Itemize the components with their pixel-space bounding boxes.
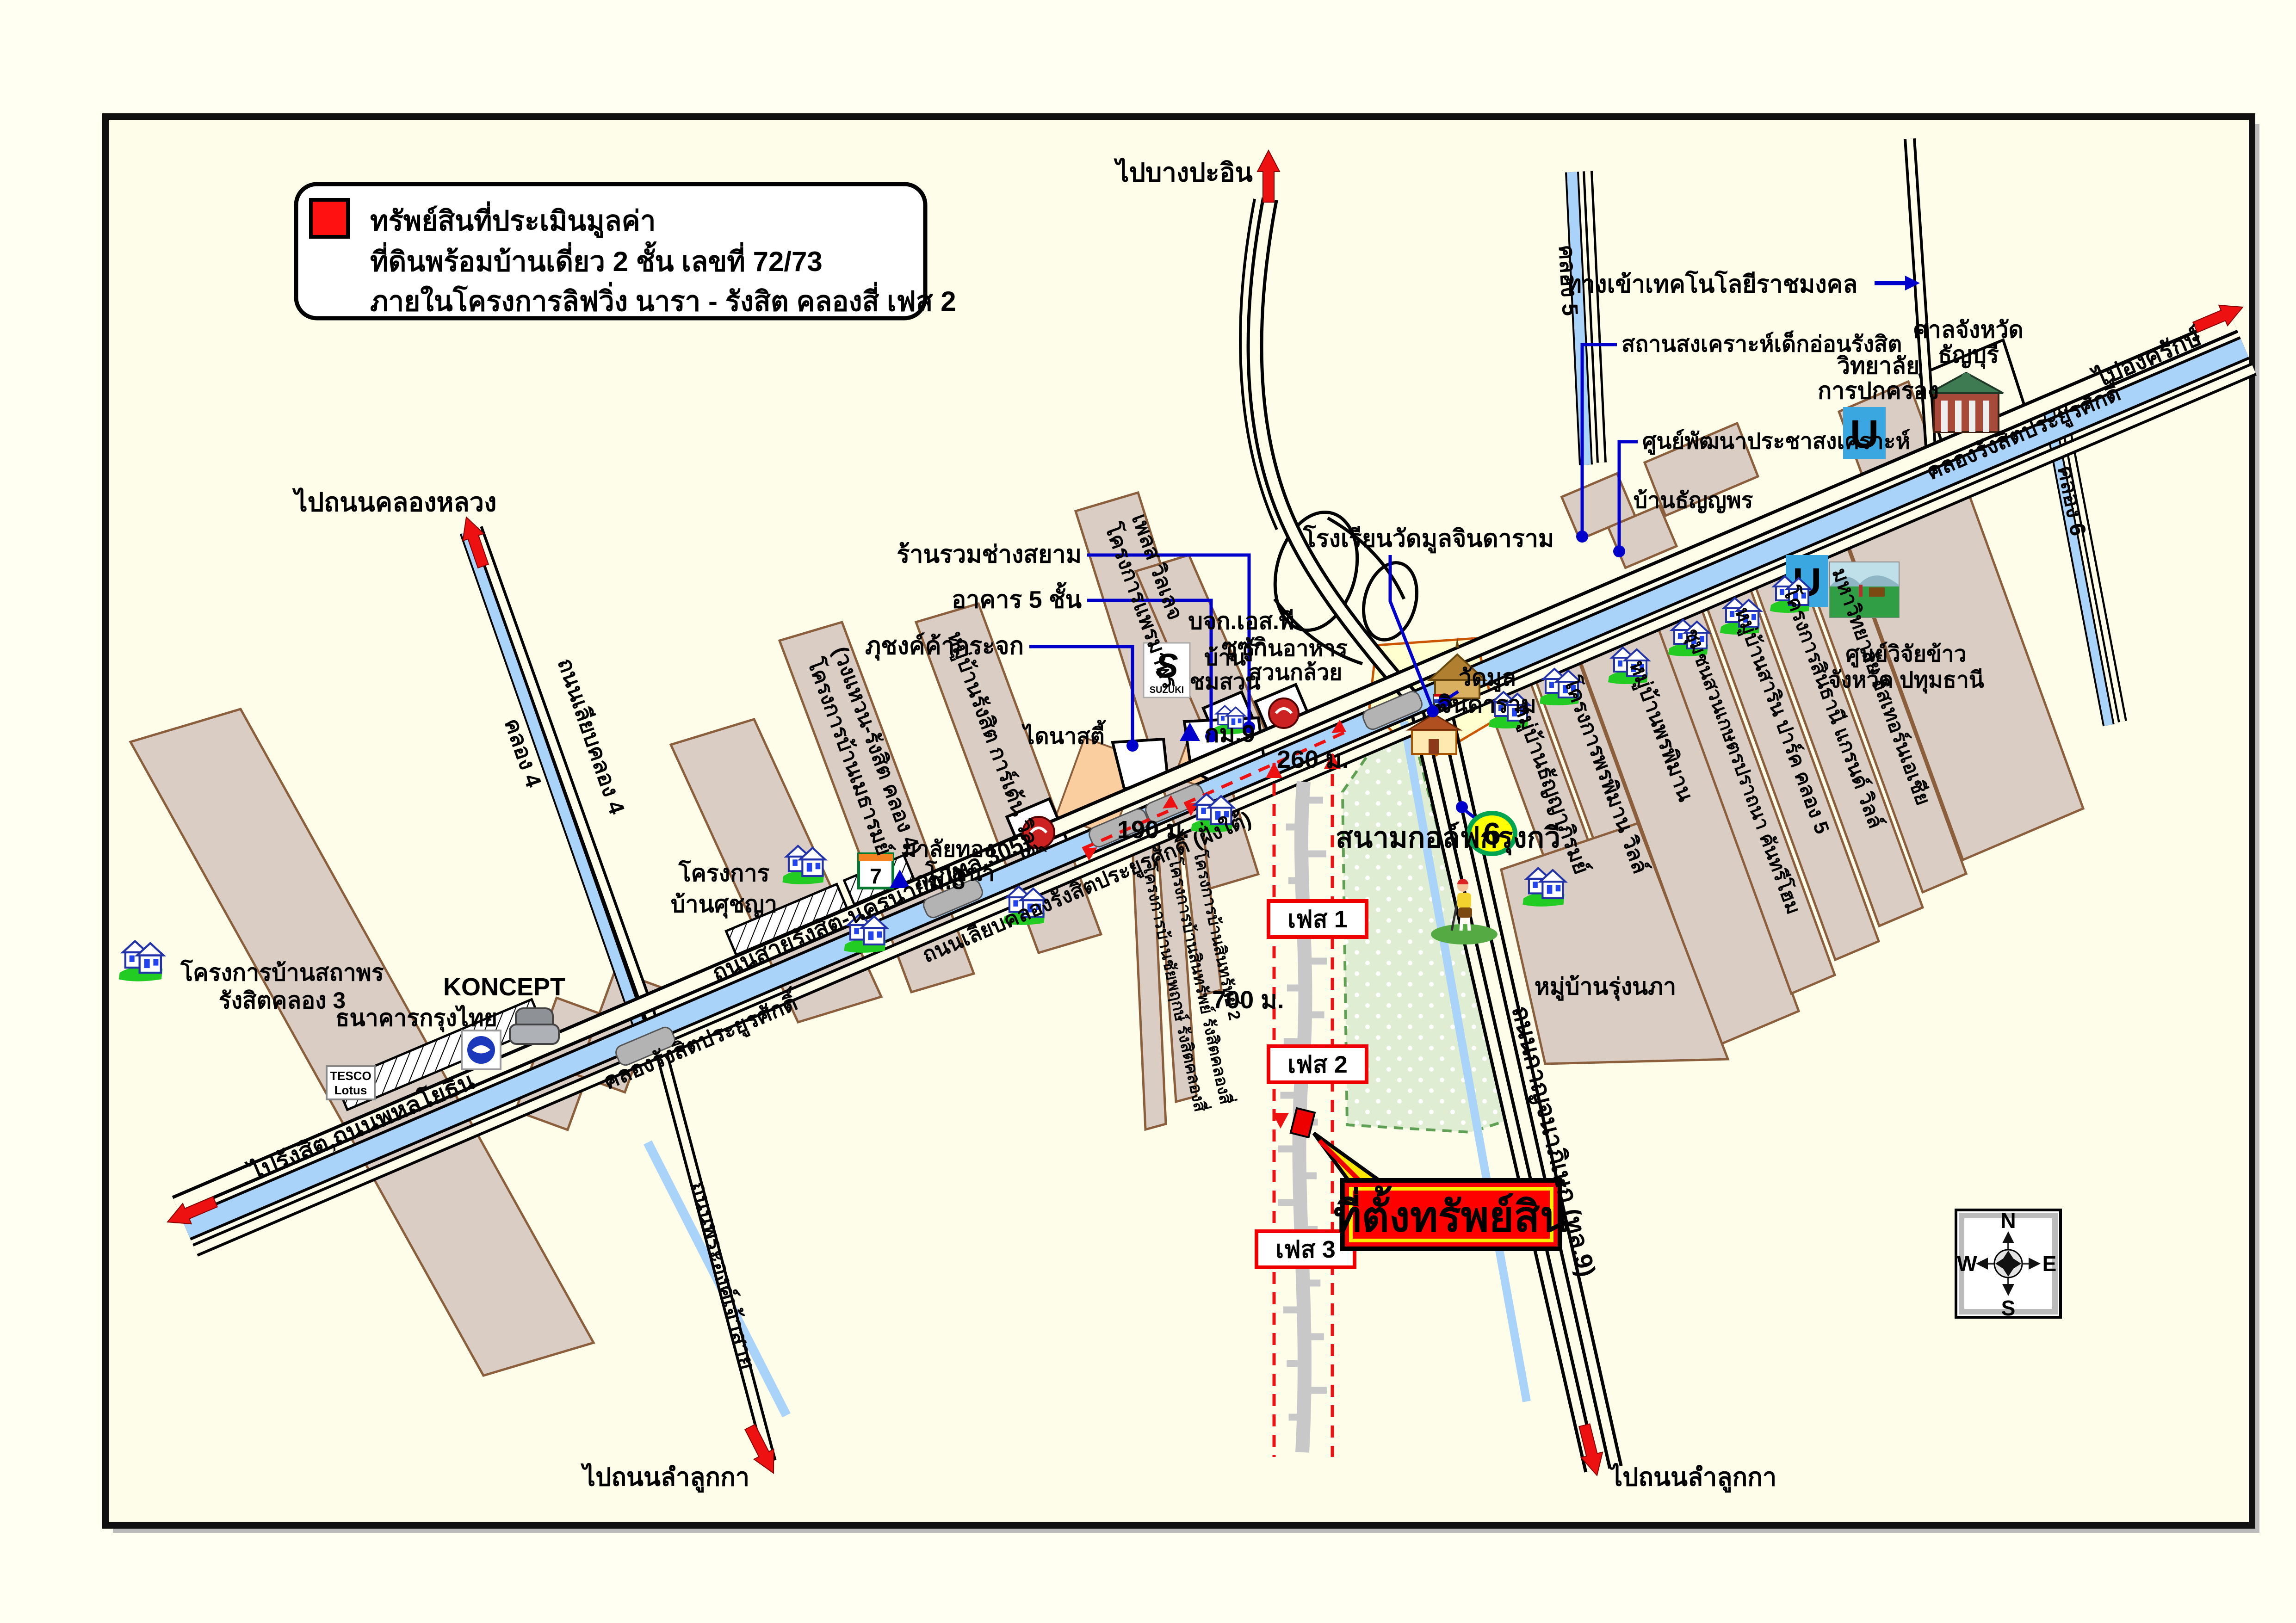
label-bang-pa-in: ไปบางปะอิน <box>1114 157 1253 187</box>
label-malaithong-2: โภชนา <box>925 860 995 886</box>
krungthai-logo <box>462 1031 501 1069</box>
legend-title: ทรัพย์สินที่ประเมินมูลค่า <box>370 201 656 238</box>
label-techno: ทางเข้าเทคโนโลยีราชมงคล <box>1566 270 1858 298</box>
property-location-label: ที่ตั้งทรัพย์สิน <box>1334 1185 1569 1240</box>
legend-line3: ภายในโครงการลิฟวิ่ง นารา - รังสิต คลองสี… <box>370 282 956 317</box>
court-column-1 <box>1941 401 1948 432</box>
compass-w: W <box>1957 1252 1977 1276</box>
property-location-map: เฟส 1 เฟส 2 เฟส 3 ที่ตั้งทรัพย์สิน TESCO… <box>0 0 2296 1623</box>
armchair-icon <box>510 1008 559 1044</box>
label-ban-thanyaporn: บ้านธัญญพร <box>1634 488 1753 513</box>
label-banana-2: สวนกล้วย <box>1249 660 1343 685</box>
label-watmun-1: วัดมูล <box>1459 665 1516 692</box>
tesco-logo: TESCO <box>330 1069 371 1083</box>
label-court-2: ธัญบุรี <box>1938 342 1999 369</box>
golfer-green <box>1431 924 1498 944</box>
label-college-1: วิทยาลัย <box>1837 353 1919 379</box>
km9-label: กม.9 <box>1205 721 1255 747</box>
legend-red-square <box>311 200 348 237</box>
dot-community-dev <box>1613 545 1625 557</box>
lotus-logo: Lotus <box>334 1083 367 1097</box>
label-siam-shop: ร้านรวมช่างสยาม <box>897 541 1082 568</box>
compass-n: N <box>2000 1209 2016 1233</box>
label-sathaporn-1: โครงการบ้านสถาพร <box>180 959 384 986</box>
golfer-leg-2 <box>1468 918 1469 931</box>
golfer-shirt <box>1457 893 1471 908</box>
phase3-label: เฟส 3 <box>1275 1236 1336 1263</box>
label-suzuki-1: บจก.เอส.พี. <box>1188 608 1301 634</box>
label-ktb: ธนาคารกรุงไทย <box>335 1005 497 1032</box>
label-dynasty: ไดนาสตี้ <box>1021 720 1106 749</box>
label-koncept: KONCEPT <box>443 973 565 1001</box>
golfer-leg-1 <box>1461 918 1462 931</box>
label-lam-luk-ka-right: ไปถนนลำลูกกา <box>1608 1463 1776 1493</box>
tesco-lotus-sign: TESCO Lotus <box>327 1066 375 1099</box>
banana-restaurant-icon <box>1269 698 1299 728</box>
label-golf: สนามกอล์ฟกรุงกวี <box>1336 821 1560 855</box>
label-college-2: การปกครอง <box>1818 378 1939 404</box>
seven-logo: 7 <box>870 864 882 888</box>
golfer-skirt <box>1458 907 1472 918</box>
label-sathaporn-2: รังสิตคลอง 3 <box>219 987 346 1013</box>
court-column-4 <box>1983 401 1989 432</box>
dot-route6 <box>1456 801 1468 813</box>
compass: N S W E <box>1956 1209 2061 1320</box>
banana-food-icon <box>1269 698 1299 728</box>
label-suchaya-2: บ้านศุชญา <box>671 891 777 919</box>
court-dome <box>1962 373 1971 382</box>
label-700m: 700 ม. <box>1212 986 1284 1014</box>
dot-school-watmun <box>1427 705 1439 717</box>
label-260m: 260 ม. <box>1277 746 1349 773</box>
label-school-watmun: โรงเรียนวัดมูลจินดาราม <box>1303 524 1554 554</box>
label-court-1: ศาลจังหวัด <box>1913 317 2024 343</box>
armchair-seat <box>510 1024 559 1044</box>
compass-e: E <box>2042 1252 2057 1276</box>
label-rice-2: จังหวัด ปทุมธานี <box>1828 668 1984 694</box>
label-chomsuan-1: บ้าน <box>1204 646 1246 670</box>
phase2-label: เฟส 2 <box>1287 1051 1348 1078</box>
court-column-3 <box>1969 401 1975 432</box>
phase1-label: เฟส 1 <box>1287 906 1348 933</box>
label-rungnapha: หมู่บ้านรุ่งนภา <box>1535 974 1676 1001</box>
label-suchaya-1: โครงการ <box>678 859 770 886</box>
school-door <box>1429 739 1439 754</box>
label-lam-luk-ka-left: ไปถนนลำลูกกา <box>581 1463 749 1493</box>
label-building5: อาคาร 5 ชั้น <box>952 582 1082 613</box>
seven-eleven-icon: 7 <box>859 854 893 888</box>
compass-s: S <box>2001 1296 2016 1320</box>
dot-glass <box>1126 740 1139 752</box>
court-column-2 <box>1955 401 1962 432</box>
label-community-dev: ศูนย์พัฒนาประชาสงเคราะห์ <box>1642 429 1910 455</box>
legend: ทรัพย์สินที่ประเมินมูลค่า ที่ดินพร้อมบ้า… <box>296 184 956 318</box>
dot-infant-home <box>1576 531 1588 543</box>
label-khlong-luang: ไปถนนคลองหลวง <box>292 487 497 517</box>
label-190m: 190 ม. <box>1117 816 1189 844</box>
legend-line2: ที่ดินพร้อมบ้านเดี่ยว 2 ชั้น เลขที่ 72/7… <box>370 241 823 277</box>
rice-img-buffalo <box>1869 587 1885 597</box>
label-banana-1: ร้านอาหาร <box>1243 636 1348 661</box>
